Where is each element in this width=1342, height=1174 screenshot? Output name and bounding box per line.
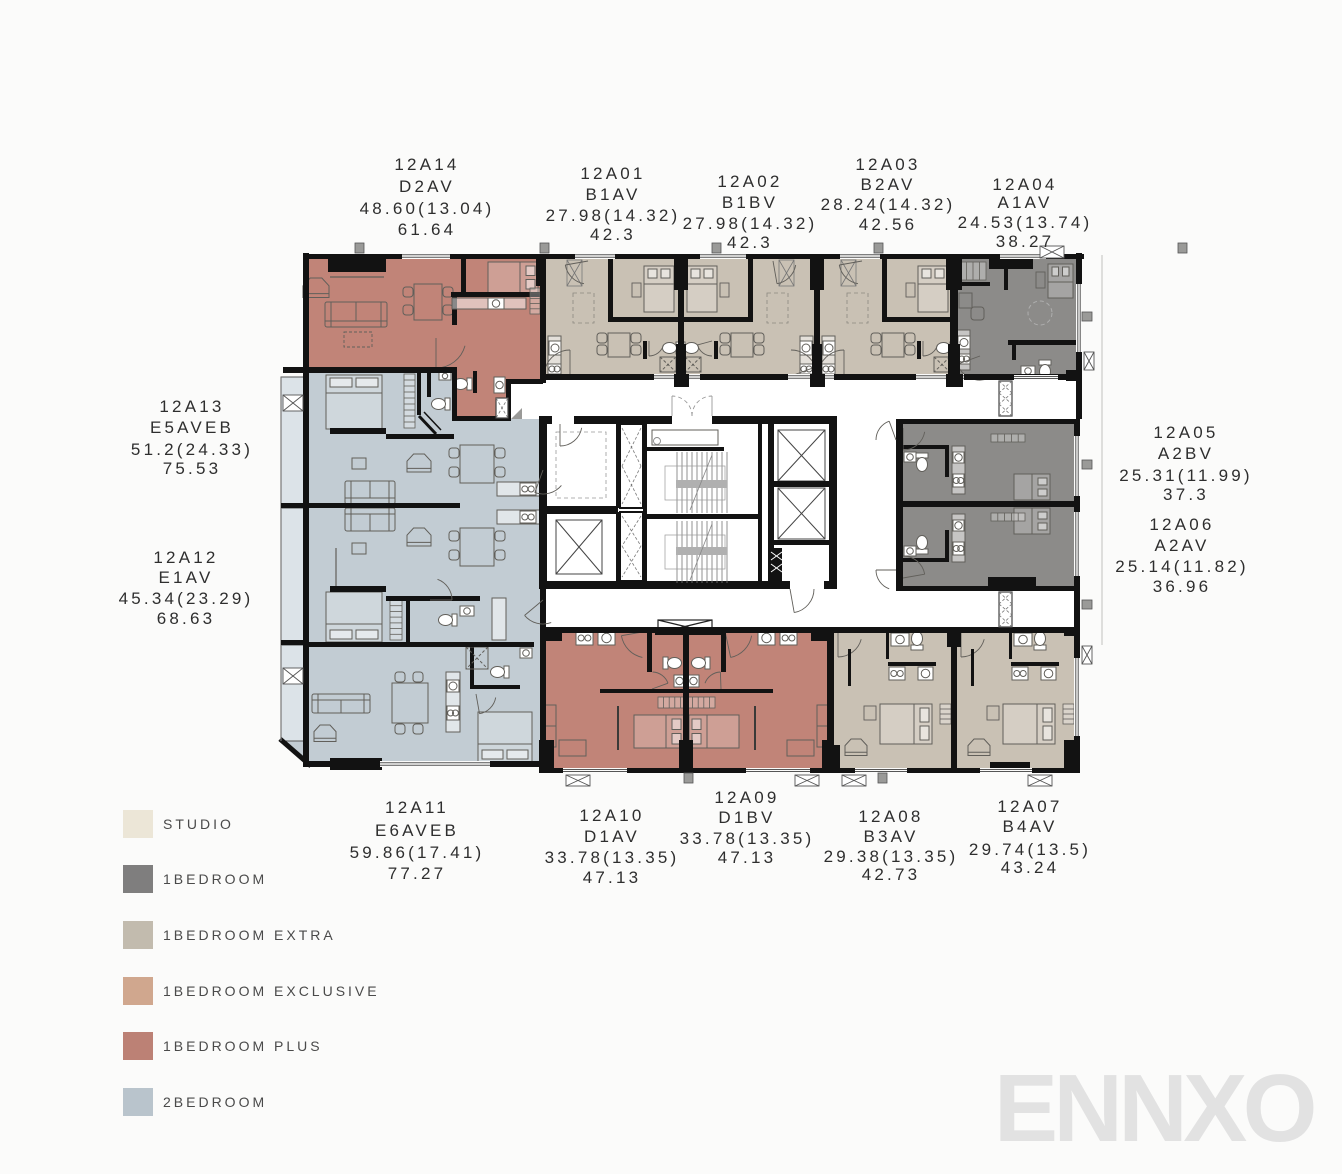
svg-text:12A08: 12A08 [858, 807, 923, 826]
svg-text:B1AV: B1AV [585, 185, 640, 204]
svg-text:24.53(13.74): 24.53(13.74) [958, 213, 1093, 232]
svg-text:59.86(17.41): 59.86(17.41) [350, 843, 485, 862]
svg-text:37.3: 37.3 [1163, 485, 1209, 504]
svg-text:38.27: 38.27 [996, 232, 1055, 251]
svg-text:D2AV: D2AV [399, 177, 455, 196]
svg-text:12A09: 12A09 [714, 788, 779, 807]
svg-text:12A02: 12A02 [717, 172, 782, 191]
svg-text:47.13: 47.13 [718, 848, 777, 867]
svg-text:12A14: 12A14 [394, 155, 459, 174]
svg-text:1BEDROOM EXCLUSIVE: 1BEDROOM EXCLUSIVE [163, 983, 380, 999]
svg-text:12A13: 12A13 [159, 397, 224, 416]
svg-text:B2AV: B2AV [860, 175, 915, 194]
svg-text:51.2(24.33): 51.2(24.33) [131, 440, 253, 459]
svg-text:1BEDROOM PLUS: 1BEDROOM PLUS [163, 1038, 323, 1054]
svg-text:27.98(14.32): 27.98(14.32) [683, 214, 818, 233]
svg-text:29.38(13.35): 29.38(13.35) [824, 847, 959, 866]
svg-text:28.24(14.32): 28.24(14.32) [821, 195, 956, 214]
svg-text:A2BV: A2BV [1158, 444, 1214, 463]
svg-text:25.14(11.82): 25.14(11.82) [1115, 557, 1249, 576]
svg-text:12A10: 12A10 [579, 806, 644, 825]
svg-text:61.64: 61.64 [398, 220, 457, 239]
svg-text:1BEDROOM EXTRA: 1BEDROOM EXTRA [163, 927, 336, 943]
svg-text:B1BV: B1BV [722, 193, 778, 212]
svg-text:STUDIO: STUDIO [163, 816, 234, 832]
svg-text:45.34(23.29): 45.34(23.29) [119, 589, 254, 608]
svg-text:27.98(14.32): 27.98(14.32) [546, 206, 681, 225]
svg-text:A1AV: A1AV [997, 193, 1052, 212]
svg-text:E5AVEB: E5AVEB [150, 418, 234, 437]
svg-text:12A12: 12A12 [153, 548, 218, 567]
svg-text:25.31(11.99): 25.31(11.99) [1119, 466, 1253, 485]
svg-text:42.56: 42.56 [859, 215, 918, 234]
svg-text:47.13: 47.13 [583, 868, 642, 887]
svg-text:12A11: 12A11 [385, 798, 449, 817]
svg-text:E6AVEB: E6AVEB [375, 821, 459, 840]
svg-text:36.96: 36.96 [1153, 577, 1212, 596]
svg-text:12A05: 12A05 [1153, 423, 1218, 442]
svg-text:12A06: 12A06 [1149, 515, 1214, 534]
svg-text:B3AV: B3AV [863, 827, 918, 846]
svg-text:12A01: 12A01 [580, 164, 645, 183]
svg-text:2BEDROOM: 2BEDROOM [163, 1094, 267, 1110]
svg-text:A2AV: A2AV [1154, 536, 1209, 555]
svg-text:B4AV: B4AV [1002, 817, 1057, 836]
svg-text:33.78(13.35): 33.78(13.35) [545, 848, 680, 867]
svg-text:42.3: 42.3 [590, 225, 636, 244]
svg-text:68.63: 68.63 [157, 609, 216, 628]
svg-text:E1AV: E1AV [158, 568, 213, 587]
svg-text:43.24: 43.24 [1001, 858, 1060, 877]
svg-text:42.73: 42.73 [862, 865, 921, 884]
svg-text:ENNXO: ENNXO [994, 1055, 1314, 1162]
svg-text:33.78(13.35): 33.78(13.35) [680, 829, 815, 848]
svg-text:D1AV: D1AV [584, 827, 640, 846]
svg-text:D1BV: D1BV [718, 808, 775, 827]
svg-text:12A03: 12A03 [855, 155, 920, 174]
svg-text:29.74(13.5): 29.74(13.5) [969, 840, 1091, 859]
svg-text:42.3: 42.3 [727, 233, 773, 252]
svg-text:48.60(13.04): 48.60(13.04) [360, 199, 495, 218]
svg-text:75.53: 75.53 [163, 459, 222, 478]
svg-text:12A04: 12A04 [992, 175, 1057, 194]
svg-text:12A07: 12A07 [997, 797, 1062, 816]
svg-text:1BEDROOM: 1BEDROOM [163, 871, 267, 887]
svg-text:77.27: 77.27 [388, 864, 447, 883]
